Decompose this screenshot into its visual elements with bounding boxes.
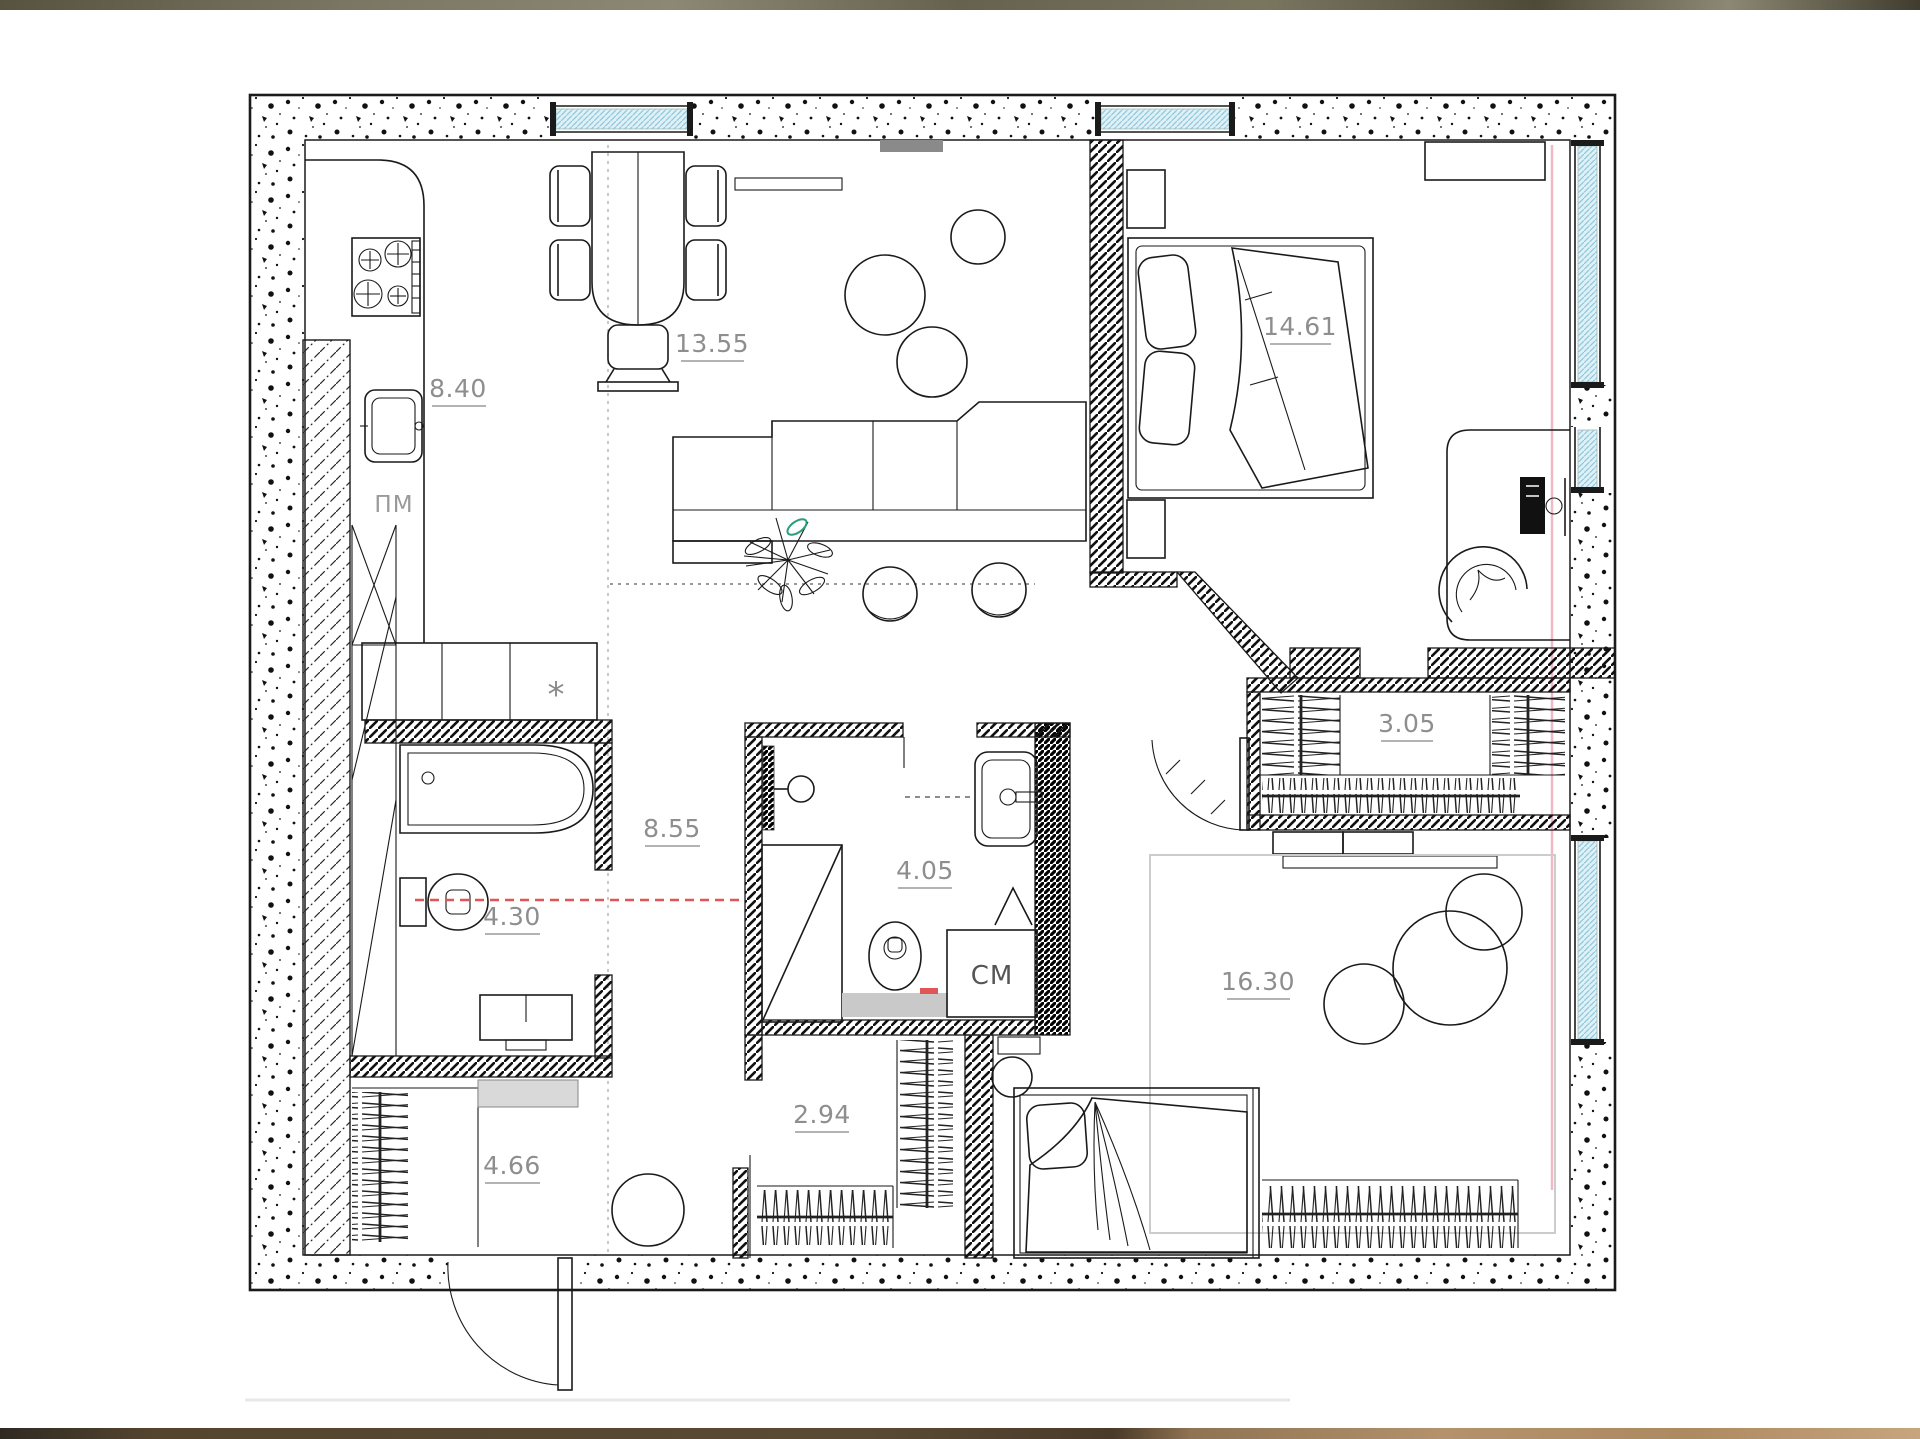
kids-rug [1150, 855, 1555, 1233]
pouf-large [845, 255, 925, 335]
blanket [1026, 1098, 1247, 1252]
entry [352, 1080, 684, 1390]
plant [743, 516, 834, 612]
bedroom [1127, 142, 1570, 640]
shower-sink [905, 752, 1042, 846]
bathtub [400, 745, 593, 833]
radiator-living [880, 140, 943, 152]
entry-console [478, 1080, 578, 1107]
bottom-photo-strip [0, 1428, 1920, 1439]
stove [352, 238, 420, 316]
label-bathroom: 4.30 [483, 902, 541, 931]
wall-closet-top [1247, 678, 1570, 692]
wall-bath-bottom [350, 1056, 612, 1077]
shower-head [788, 776, 814, 802]
page: ПМ * [0, 0, 1920, 1439]
utility-shaft [352, 525, 396, 1056]
radiator-dining [735, 178, 842, 190]
drawer [1343, 832, 1413, 854]
wall-bath-top [365, 720, 612, 743]
floor-plan-svg: ПМ * [0, 0, 1920, 1439]
beanbag [1324, 964, 1404, 1044]
sofa [673, 402, 1086, 563]
wall-closet-bottom [1247, 815, 1570, 830]
washing-machine: СМ [947, 888, 1037, 1017]
kids-clothes-rail [1262, 1180, 1518, 1248]
bedroom-console [1425, 142, 1545, 180]
label-kitchen: 8.40 [429, 374, 487, 403]
wall-heavy [1035, 723, 1070, 1035]
pouf-small [951, 210, 1005, 264]
drawer [1273, 832, 1343, 854]
wall-hallcloset-right [965, 1035, 993, 1258]
wall-diagonal [1177, 572, 1298, 693]
label-kids-room: 16.30 [1221, 967, 1295, 996]
pillow [1026, 1102, 1088, 1170]
nightstand-top [1127, 170, 1165, 228]
kitchen-sink [360, 390, 423, 462]
bath-mat [842, 993, 948, 1017]
wall-shower-top [745, 723, 903, 737]
bar-stools [863, 563, 1026, 621]
top-photo-strip [0, 0, 1920, 10]
bedroom-chair [1439, 547, 1527, 622]
label-hallway: 8.55 [643, 814, 701, 843]
kitchen-cabinet-row: * [362, 643, 597, 720]
pillow [1137, 253, 1198, 350]
label-entry: 4.66 [483, 1151, 541, 1180]
shelf [1283, 856, 1497, 868]
label-hall-closet: 2.94 [793, 1100, 851, 1129]
label-bedroom-closet: 3.05 [1378, 709, 1436, 738]
washing-machine-label: СМ [971, 961, 1014, 991]
wall-bath-right [595, 743, 612, 870]
nightstand-bottom [1127, 500, 1165, 558]
hall-closet [750, 1040, 953, 1258]
pouf-medium [897, 327, 967, 397]
wall-living-bedroom [1090, 140, 1123, 573]
wall-bedroom-bottom [1290, 648, 1360, 678]
dishwasher-label: ПМ [374, 492, 413, 518]
pillow [1138, 350, 1196, 446]
windows [550, 102, 1604, 1190]
bed-master [1128, 238, 1373, 498]
kids-door [1152, 738, 1249, 830]
label-shower-room: 4.05 [896, 856, 954, 885]
toilet-main [400, 874, 488, 930]
toilet-shower-room [869, 922, 921, 990]
kids-shelf [998, 1037, 1040, 1054]
entry-pouf [612, 1174, 684, 1246]
valve-mark [995, 888, 1032, 925]
kids-pouf [992, 1057, 1032, 1097]
shower-glass [763, 746, 774, 830]
cabinet-mark: * [548, 675, 565, 715]
red-mark [920, 988, 938, 994]
bath-vanity [480, 995, 572, 1050]
wall-shower-left [745, 737, 762, 1035]
party-wall [303, 340, 350, 1255]
living-room [673, 140, 1086, 621]
label-dining-living: 13.55 [675, 329, 749, 358]
bathroom-main [400, 745, 742, 1050]
label-bedroom: 14.61 [1263, 312, 1337, 341]
